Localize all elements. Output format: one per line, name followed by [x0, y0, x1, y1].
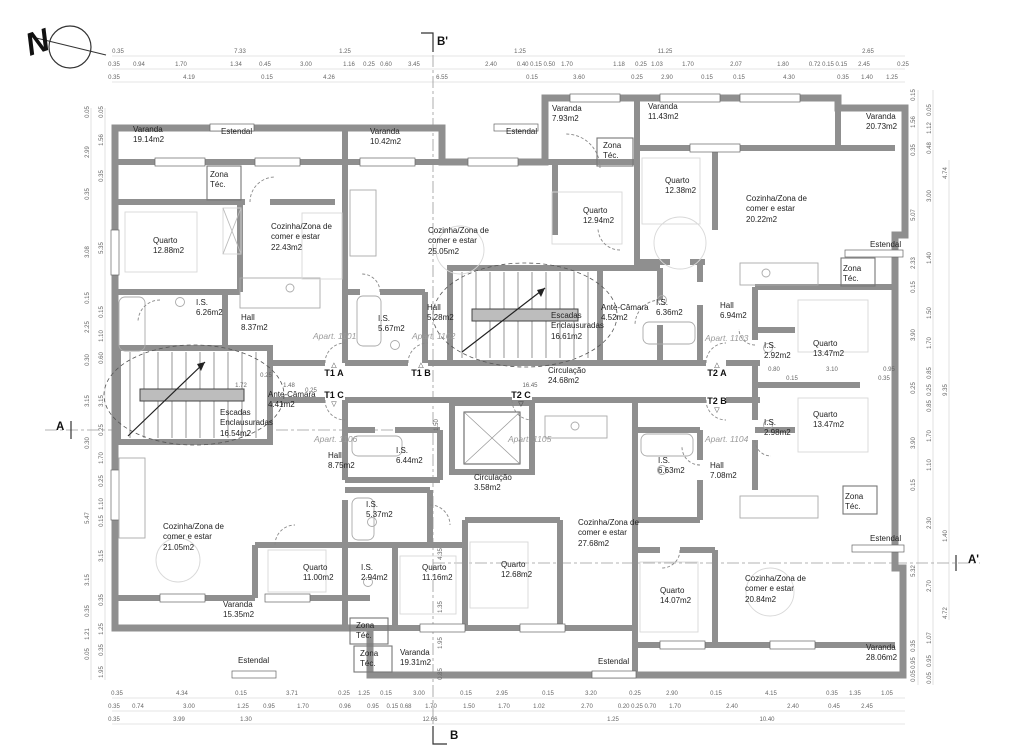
room-name: Quarto — [665, 176, 696, 186]
room-area: 19.14m2 — [133, 135, 164, 145]
room-name: Zona Téc. — [845, 492, 875, 513]
dimension-value: 2.95 — [496, 691, 508, 697]
dimension-value: 4.35 — [438, 548, 444, 560]
label-layer: Varanda19.14m2EstendalVaranda10.42m2Este… — [0, 0, 1024, 750]
unit-type-label: T1 B — [411, 368, 431, 378]
room-name: Cozinha/Zona de comer e estar — [745, 574, 811, 595]
room-area: 13.47m2 — [813, 420, 844, 430]
room-area: 27.68m2 — [578, 539, 644, 549]
dimension-value: 1.40 — [927, 252, 933, 264]
dimension-value: 3.15 — [99, 395, 105, 407]
room-label: Cozinha/Zona de comer e estar25.05m2 — [428, 226, 494, 257]
dimension-value: 3.00 — [927, 190, 933, 202]
unit-triangle-icon: ▽ — [324, 401, 344, 408]
room-area: 7.93m2 — [552, 114, 582, 124]
dimension-value: 0.25 — [338, 691, 350, 697]
dimension-value: 0.95 — [911, 657, 917, 669]
dimension-value: 0.25 — [363, 62, 375, 68]
room-name: Cozinha/Zona de comer e estar — [746, 194, 812, 215]
room-name: Zona Téc. — [603, 141, 633, 162]
room-label: I.S.2.92m2 — [764, 341, 791, 362]
dimension-value: 1.48 — [283, 383, 295, 389]
dimension-value: 2.40 — [485, 62, 497, 68]
room-label: Ante-Câmara4.52m2 — [601, 303, 659, 324]
dimension-value: 0.48 — [927, 142, 933, 154]
dimension-value: 1.50 — [434, 419, 440, 431]
dimension-value: 2.25 — [85, 321, 91, 333]
room-name: Varanda — [370, 127, 401, 137]
room-area: 20.73m2 — [866, 122, 897, 132]
dimension-value: 0.25 — [629, 691, 641, 697]
room-area: 6.44m2 — [396, 456, 423, 466]
room-label: Zona Téc. — [360, 649, 390, 670]
unit-type-label: T2 B — [707, 396, 727, 406]
dimension-value: 0.45 — [828, 704, 840, 710]
room-area: 12.68m2 — [501, 570, 532, 580]
dimension-value: 1.70 — [175, 62, 187, 68]
dimension-value: 0.15 — [99, 306, 105, 318]
room-label: I.S.6.36m2 — [656, 298, 683, 319]
room-area: 2.98m2 — [764, 428, 791, 438]
dimension-value: 0.15 — [460, 691, 472, 697]
dimension-value: 2.07 — [730, 62, 742, 68]
dimension-value: 1.80 — [777, 62, 789, 68]
unit-triangle-icon: ▽ — [707, 407, 727, 414]
room-area: 8.37m2 — [241, 323, 268, 333]
dimension-value: 1.50 — [463, 704, 475, 710]
dimension-value: 0.15 — [710, 691, 722, 697]
room-label: I.S.2.94m2 — [361, 563, 388, 584]
room-name: Quarto — [813, 410, 844, 420]
room-name: Estendal — [870, 240, 901, 250]
room-label: Hall7.08m2 — [710, 461, 737, 482]
dimension-value: 0.15 — [526, 75, 538, 81]
unit-type-marker: △T2 A — [707, 362, 726, 379]
dimension-value: 0.25 — [927, 384, 933, 396]
room-label: Quarto12.94m2 — [583, 206, 614, 227]
dimension-value: 0.96 — [339, 704, 351, 710]
dimension-value: 0.95 — [367, 704, 379, 710]
dimension-value: 2.65 — [862, 49, 874, 55]
dimension-value: 0.15 — [261, 75, 273, 81]
dimension-value: 1.25 — [339, 49, 351, 55]
room-name: Hall — [427, 303, 454, 313]
room-label: Escadas Enclausuradas16.61m2 — [551, 311, 607, 342]
room-name: I.S. — [656, 298, 683, 308]
dimension-value: 1.56 — [99, 134, 105, 146]
room-area: 15.35m2 — [223, 610, 254, 620]
dimension-value: 0.35 — [99, 170, 105, 182]
dimension-value: 4.34 — [176, 691, 188, 697]
dimension-value: 1.25 — [607, 717, 619, 723]
unit-type-label: T2 A — [707, 368, 726, 378]
dimension-value: 0.35 — [85, 605, 91, 617]
dimension-value: 3.00 — [183, 704, 195, 710]
dimension-value: 0.25 — [911, 382, 917, 394]
dimension-value: 1.25 — [237, 704, 249, 710]
room-label: Hall8.37m2 — [241, 313, 268, 334]
unit-type-label: T1 C — [324, 390, 344, 400]
dimension-value: 0.15 — [380, 691, 392, 697]
room-name: Quarto — [660, 586, 691, 596]
dimension-value: 2.99 — [85, 146, 91, 158]
room-area: 25.05m2 — [428, 247, 494, 257]
room-area: 20.84m2 — [745, 595, 811, 605]
dimension-value: 1.56 — [911, 116, 917, 128]
dimension-value: 11.25 — [658, 49, 673, 55]
dimension-value: 3.90 — [911, 329, 917, 341]
unit-type-label: T1 A — [324, 368, 343, 378]
room-label: Zona Téc. — [845, 492, 875, 513]
room-area: 10.42m2 — [370, 137, 401, 147]
room-name: Estendal — [221, 127, 252, 137]
dimension-value: 1.25 — [99, 623, 105, 635]
dimension-value: 0.05 — [927, 672, 933, 684]
room-name: Cozinha/Zona de comer e estar — [578, 518, 644, 539]
dimension-value: 10.40 — [759, 717, 774, 723]
room-name: Varanda — [552, 104, 582, 114]
dimension-value: 5.07 — [911, 209, 917, 221]
room-name: Escadas Enclausuradas — [551, 311, 607, 332]
dimension-value: 4.15 — [765, 691, 777, 697]
room-label: Cozinha/Zona de comer e estar22.43m2 — [271, 222, 337, 253]
room-label: Varanda11.43m2 — [648, 102, 679, 123]
room-label: I.S.5.37m2 — [366, 500, 393, 521]
room-label: Zona Téc. — [843, 264, 873, 285]
room-name: I.S. — [361, 563, 388, 573]
apartment-label: Apart. 1104 — [705, 434, 748, 444]
dimension-value: 0.45 — [259, 62, 271, 68]
dimension-value: 2.40 — [726, 704, 738, 710]
dimension-value: 3.08 — [85, 246, 91, 258]
room-name: Varanda — [133, 125, 164, 135]
room-name: Estendal — [506, 127, 537, 137]
room-area: 3.58m2 — [474, 483, 512, 493]
dimension-value: 3.71 — [286, 691, 298, 697]
dimension-value: 6.55 — [436, 75, 448, 81]
dimension-value: 0.35 — [878, 376, 890, 382]
dimension-value: 2.90 — [661, 75, 673, 81]
dimension-value: 0.95 — [263, 704, 275, 710]
room-label: Quarto12.68m2 — [501, 560, 532, 581]
dimension-value: 1.95 — [438, 637, 444, 649]
dimension-value: 0.35 — [826, 691, 838, 697]
room-area: 12.38m2 — [665, 186, 696, 196]
room-name: Quarto — [422, 563, 453, 573]
section-marker: A' — [968, 554, 979, 566]
dimension-value: 0.40 0.15 0.50 — [517, 62, 555, 68]
room-label: Quarto13.47m2 — [813, 339, 844, 360]
dimension-value: 2.30 — [927, 517, 933, 529]
room-label: Varanda10.42m2 — [370, 127, 401, 148]
room-area: 6.36m2 — [656, 308, 683, 318]
room-area: 4.41m2 — [268, 400, 326, 410]
room-area: 6.94m2 — [720, 311, 747, 321]
dimension-value: 0.25 — [260, 373, 272, 379]
room-name: Quarto — [153, 236, 184, 246]
dimension-value: 3.15 — [99, 550, 105, 562]
unit-type-marker: T2 B▽ — [707, 397, 727, 414]
dimension-value: 1.95 — [99, 666, 105, 678]
room-name: Zona Téc. — [210, 170, 240, 191]
dimension-value: 2.90 — [666, 691, 678, 697]
dimension-value: 0.74 — [132, 704, 144, 710]
room-name: Estendal — [238, 656, 269, 666]
room-name: Varanda — [400, 648, 431, 658]
dimension-value: 1.34 — [230, 62, 242, 68]
dimension-value: 1.72 — [235, 383, 247, 389]
dimension-value: 0.35 — [112, 49, 124, 55]
room-label: Estendal — [870, 240, 901, 250]
section-marker: B — [450, 730, 458, 742]
dimension-value: 0.35 — [108, 75, 120, 81]
room-area: 16.61m2 — [551, 332, 607, 342]
room-area: 20.22m2 — [746, 215, 812, 225]
dimension-value: 0.05 — [911, 670, 917, 682]
room-area: 14.07m2 — [660, 596, 691, 606]
room-label: Varanda19.14m2 — [133, 125, 164, 146]
dimension-value: 4.72 — [943, 607, 949, 619]
room-area: 12.88m2 — [153, 246, 184, 256]
room-label: I.S.6.26m2 — [196, 298, 223, 319]
dimension-value: 4.19 — [183, 75, 195, 81]
dimension-value: 1.70 — [297, 704, 309, 710]
dimension-value: 1.02 — [533, 704, 545, 710]
room-name: I.S. — [196, 298, 223, 308]
dimension-value: 0.15 — [911, 479, 917, 491]
section-marker: A — [56, 421, 64, 433]
dimension-value: 2.70 — [927, 580, 933, 592]
room-name: Zona Téc. — [843, 264, 873, 285]
dimension-value: 1.25 — [514, 49, 526, 55]
dimension-value: 16.45 — [522, 383, 537, 389]
room-label: Estendal — [870, 534, 901, 544]
unit-type-marker: T2 C▽ — [511, 391, 531, 408]
dimension-value: 0.25 — [631, 75, 643, 81]
room-area: 12.94m2 — [583, 216, 614, 226]
dimension-value: 3.90 — [911, 437, 917, 449]
dimension-value: 1.70 — [498, 704, 510, 710]
room-name: Ante-Câmara — [268, 390, 326, 400]
dimension-value: 4.30 — [783, 75, 795, 81]
dimension-value: 1.30 — [240, 717, 252, 723]
dimension-value: 0.30 — [85, 354, 91, 366]
dimension-value: 0.35 — [108, 62, 120, 68]
room-area: 19.31m2 — [400, 658, 431, 668]
room-area: 24.68m2 — [548, 376, 586, 386]
room-name: Cozinha/Zona de comer e estar — [271, 222, 337, 243]
room-name: Circulação — [548, 366, 586, 376]
dimension-value: 2.70 — [581, 704, 593, 710]
room-area: 5.37m2 — [366, 510, 393, 520]
dimension-value: 0.30 — [85, 437, 91, 449]
dimension-value: 0.35 — [911, 144, 917, 156]
floor-plan-canvas: Varanda19.14m2EstendalVaranda10.42m2Este… — [0, 0, 1024, 750]
dimension-value: 5.32 — [911, 565, 917, 577]
room-name: Hall — [710, 461, 737, 471]
dimension-value: 9.35 — [943, 384, 949, 396]
room-name: I.S. — [366, 500, 393, 510]
room-name: Varanda — [223, 600, 254, 610]
room-label: Quarto13.47m2 — [813, 410, 844, 431]
dimension-value: 0.15 — [85, 292, 91, 304]
dimension-value: 2.45 — [861, 704, 873, 710]
room-label: Varanda20.73m2 — [866, 112, 897, 133]
room-label: Estendal — [221, 127, 252, 137]
dimension-value: 0.20 0.25 0.70 — [618, 704, 656, 710]
unit-type-marker: T1 C▽ — [324, 391, 344, 408]
room-label: Quarto11.16m2 — [422, 563, 453, 584]
dimension-value: 1.35 — [438, 601, 444, 613]
dimension-value: 0.35 — [111, 691, 123, 697]
dimension-value: 1.70 — [425, 704, 437, 710]
dimension-value: 1.40 — [861, 75, 873, 81]
dimension-value: 0.15 0.68 — [386, 704, 411, 710]
room-area: 7.08m2 — [710, 471, 737, 481]
room-label: Varanda28.06m2 — [866, 643, 897, 664]
apartment-label: Apart. 1105 — [508, 434, 551, 444]
dimension-value: 1.70 — [927, 430, 933, 442]
dimension-value: 1.40 — [943, 530, 949, 542]
room-name: Quarto — [813, 339, 844, 349]
unit-type-label: T2 C — [511, 390, 531, 400]
dimension-value: 4.74 — [943, 167, 949, 179]
dimension-value: 0.60 — [380, 62, 392, 68]
dimension-value: 0.05 — [99, 106, 105, 118]
dimension-value: 1.18 — [613, 62, 625, 68]
dimension-value: 0.95 — [927, 655, 933, 667]
dimension-value: 1.50 — [927, 307, 933, 319]
room-name: I.S. — [658, 456, 685, 466]
dimension-value: 0.15 — [99, 515, 105, 527]
room-name: Varanda — [866, 643, 897, 653]
room-label: Circulação24.68m2 — [548, 366, 586, 387]
room-name: I.S. — [378, 314, 405, 324]
room-label: Quarto14.07m2 — [660, 586, 691, 607]
room-label: I.S.5.67m2 — [378, 314, 405, 335]
room-name: I.S. — [396, 446, 423, 456]
room-area: 28.06m2 — [866, 653, 897, 663]
room-label: Zona Téc. — [603, 141, 633, 162]
dimension-value: 0.25 — [99, 475, 105, 487]
room-area: 5.28m2 — [427, 313, 454, 323]
dimension-value: 0.85 — [927, 367, 933, 379]
room-label: Hall5.28m2 — [427, 303, 454, 324]
dimension-value: 3.60 — [573, 75, 585, 81]
room-name: I.S. — [764, 418, 791, 428]
dimension-value: 0.15 — [235, 691, 247, 697]
dimension-value: 1.25 — [886, 75, 898, 81]
dimension-value: 0.35 — [837, 75, 849, 81]
room-label: Escadas Enclausuradas16.54m2 — [220, 408, 276, 439]
room-label: Varanda19.31m2 — [400, 648, 431, 669]
room-area: 8.75m2 — [328, 461, 355, 471]
room-label: Cozinha/Zona de comer e estar20.22m2 — [746, 194, 812, 225]
dimension-value: 0.15 — [786, 376, 798, 382]
dimension-value: 0.35 — [85, 188, 91, 200]
room-area: 2.92m2 — [764, 351, 791, 361]
room-label: Hall6.94m2 — [720, 301, 747, 322]
dimension-value: 0.72 0.15 0.15 — [809, 62, 847, 68]
dimension-value: 3.20 — [585, 691, 597, 697]
dimension-value: 0.15 — [733, 75, 745, 81]
room-area: 4.52m2 — [601, 313, 659, 323]
dimension-value: 0.25 — [635, 62, 647, 68]
dimension-value: 3.15 — [85, 574, 91, 586]
room-name: Cozinha/Zona de comer e estar — [428, 226, 494, 247]
room-label: Varanda15.35m2 — [223, 600, 254, 621]
room-label: I.S.6.63m2 — [658, 456, 685, 477]
room-label: Quarto12.88m2 — [153, 236, 184, 257]
room-area: 16.54m2 — [220, 429, 276, 439]
room-area: 6.63m2 — [658, 466, 685, 476]
dimension-value: 3.00 — [413, 691, 425, 697]
dimension-value: 0.05 — [927, 104, 933, 116]
dimension-value: 1.70 — [682, 62, 694, 68]
room-label: Estendal — [506, 127, 537, 137]
dimension-value: 0.35 — [108, 717, 120, 723]
dimension-value: 1.70 — [561, 62, 573, 68]
room-name: Quarto — [501, 560, 532, 570]
room-area: 11.43m2 — [648, 112, 679, 122]
dimension-value: 0.15 — [911, 281, 917, 293]
dimension-value: 3.10 — [826, 367, 838, 373]
room-label: Cozinha/Zona de comer e estar21.05m2 — [163, 522, 229, 553]
section-marker: B' — [437, 36, 448, 48]
dimension-value: 1.35 — [849, 691, 861, 697]
room-name: Hall — [328, 451, 355, 461]
dimension-value: 1.07 — [927, 632, 933, 644]
dimension-value: 0.85 — [927, 400, 933, 412]
dimension-value: 1.10 — [927, 459, 933, 471]
dimension-value: 3.00 — [300, 62, 312, 68]
dimension-value: 1.05 — [881, 691, 893, 697]
dimension-value: 2.45 — [858, 62, 870, 68]
apartment-label: Apart. 1101 — [313, 331, 356, 341]
room-area: 21.05m2 — [163, 543, 229, 553]
dimension-value: 0.95 — [883, 367, 895, 373]
dimension-value: 0.15 — [542, 691, 554, 697]
room-label: Cozinha/Zona de comer e estar20.84m2 — [745, 574, 811, 605]
room-area: 22.43m2 — [271, 243, 337, 253]
room-name: Zona Téc. — [360, 649, 390, 670]
dimension-value: 0.25 — [897, 62, 909, 68]
dimension-value: 1.12 — [927, 122, 933, 134]
dimension-value: 0.35 — [911, 640, 917, 652]
room-name: Quarto — [583, 206, 614, 216]
room-name: Escadas Enclausuradas — [220, 408, 276, 429]
room-name: Circulação — [474, 473, 512, 483]
dimension-value: 0.60 — [99, 352, 105, 364]
dimension-value: 0.85 — [438, 668, 444, 680]
dimension-value: 7.33 — [234, 49, 246, 55]
room-label: Quarto11.00m2 — [303, 563, 334, 584]
room-label: Quarto12.38m2 — [665, 176, 696, 197]
room-label: I.S.6.44m2 — [396, 446, 423, 467]
dimension-value: 1.10 — [99, 330, 105, 342]
dimension-value: 12.66 — [422, 717, 437, 723]
room-label: Hall8.75m2 — [328, 451, 355, 472]
dimension-value: 0.05 — [85, 106, 91, 118]
room-label: Circulação3.58m2 — [474, 473, 512, 494]
dimension-value: 0.35 — [99, 644, 105, 656]
unit-type-marker: △T1 A — [324, 362, 343, 379]
dimension-value: 1.70 — [669, 704, 681, 710]
apartment-label: Apart. 1103 — [705, 333, 748, 343]
room-label: Estendal — [238, 656, 269, 666]
room-area: 6.26m2 — [196, 308, 223, 318]
room-name: Varanda — [866, 112, 897, 122]
